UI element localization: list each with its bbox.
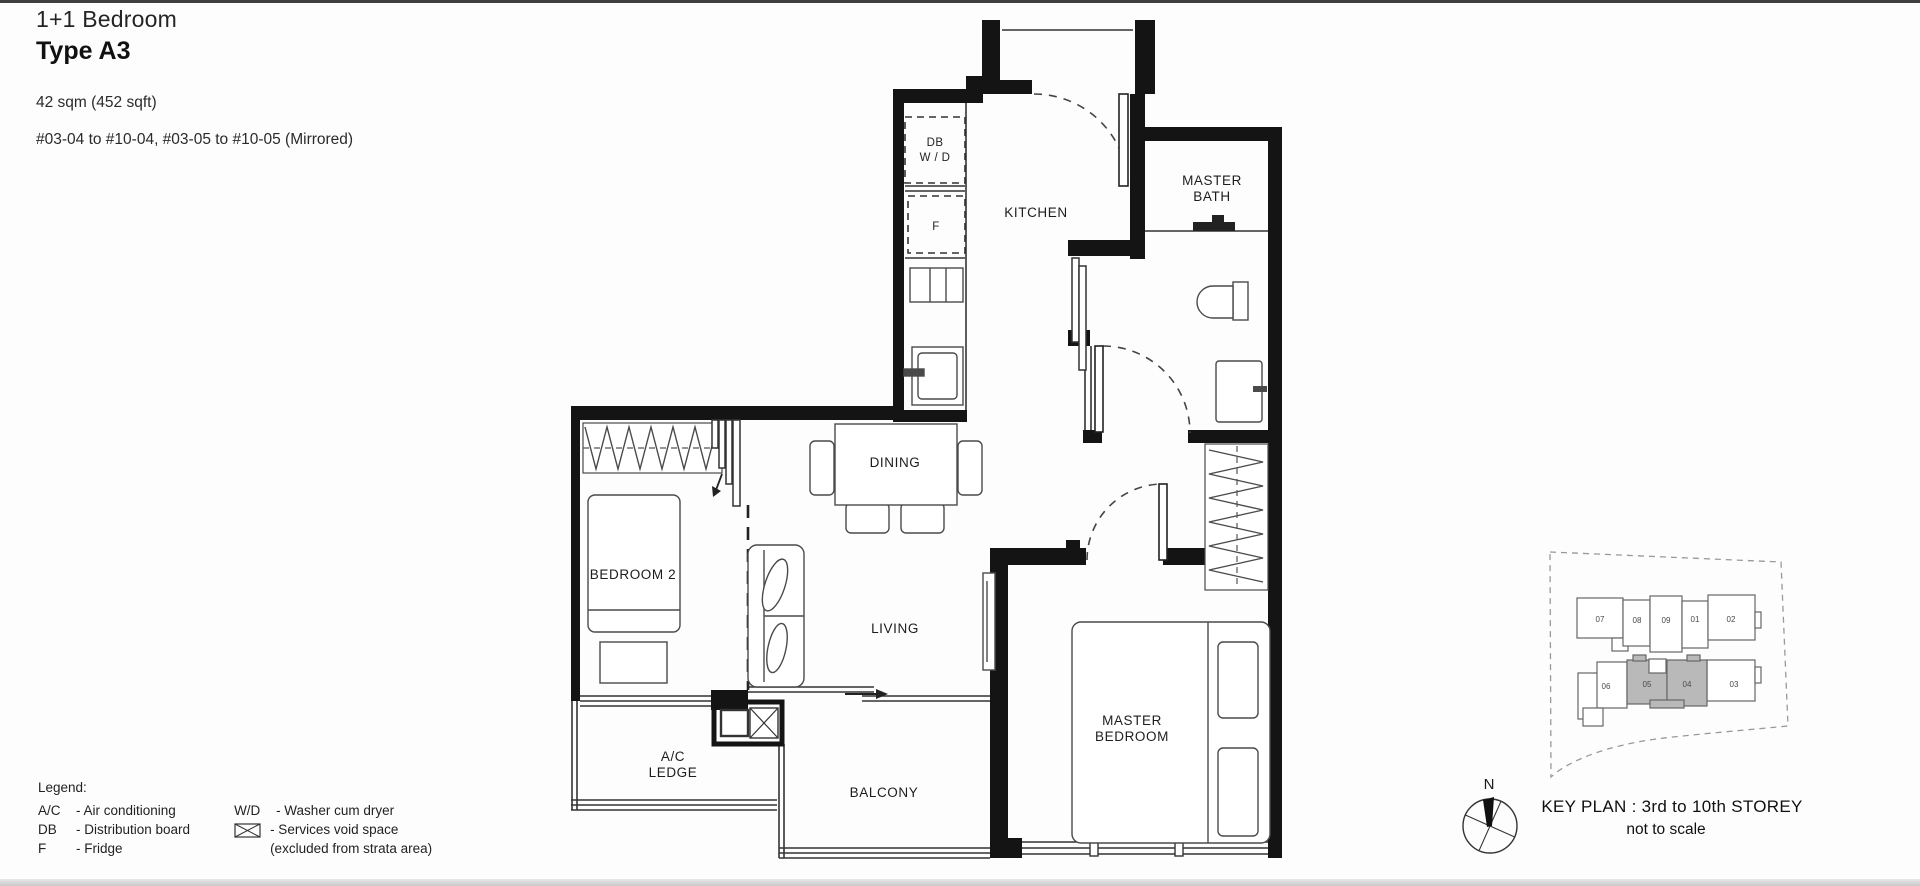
- legend-left-column: A/C - Air conditioning DB - Distribution…: [38, 803, 190, 860]
- legend-desc-void-note: (excluded from strata area): [270, 841, 432, 856]
- bedroom2-wardrobe: [583, 423, 722, 473]
- label-kitchen: KITCHEN: [1004, 205, 1067, 220]
- master-bath-door-leaf: [1095, 346, 1103, 432]
- dining-chair-bottom-2: [901, 503, 944, 533]
- dining-chair-bottom-1: [846, 503, 889, 533]
- label-db: DB: [927, 137, 944, 149]
- kitchen-faucet: [904, 369, 924, 376]
- db-wd-box: [905, 117, 965, 183]
- slide-direction-arrow: [845, 689, 888, 699]
- label-ac-ledge-1: A/C: [661, 749, 685, 764]
- legend-desc-f: - Fridge: [76, 841, 123, 856]
- basin-faucet: [1253, 386, 1267, 392]
- bedroom2-desk: [600, 642, 667, 683]
- label-master-bedroom-1: MASTER: [1102, 713, 1162, 728]
- key-plan-highlighted-blocks: [1627, 655, 1707, 708]
- kp-unit-06: 06: [1602, 682, 1611, 691]
- pillow: [1218, 642, 1258, 718]
- dining-chair-right: [958, 441, 982, 495]
- kp-unit-08: 08: [1633, 616, 1642, 625]
- label-wd: W / D: [920, 152, 951, 164]
- hob: [910, 268, 963, 302]
- legend-desc-ac: - Air conditioning: [76, 803, 176, 818]
- kitchen-sliding-panel: [1072, 258, 1086, 370]
- north-compass-icon: N: [1454, 776, 1525, 862]
- key-plan-title: KEY PLAN : 3rd to 10th STOREY: [1541, 797, 1802, 816]
- label-bedroom2: BEDROOM 2: [590, 567, 676, 582]
- kp-unit-03: 03: [1730, 680, 1739, 689]
- key-plan: 07 08 09 01 02 06 05 04 03 N KEY PLAN : …: [1454, 552, 1802, 862]
- kp-unit-07: 07: [1596, 615, 1605, 624]
- label-ac-ledge-2: LEDGE: [649, 765, 698, 780]
- pillow: [1218, 748, 1258, 836]
- kp-unit-02: 02: [1727, 615, 1736, 624]
- legend-abbr-f: F: [38, 841, 76, 856]
- bedroom2-bed: [588, 495, 680, 632]
- legend-abbr-wd: W/D: [234, 803, 276, 818]
- legend-desc-wd: - Washer cum dryer: [276, 803, 394, 818]
- fold-direction-arrow: [712, 474, 722, 497]
- floor-plan: KITCHEN MASTER BATH DB W / D F DINING BE…: [0, 0, 1920, 886]
- legend-title: Legend:: [38, 780, 432, 795]
- dining-set: [810, 424, 982, 533]
- master-wardrobe: [1205, 444, 1268, 590]
- kitchen-counter: [904, 268, 963, 405]
- kp-unit-04: 04: [1683, 680, 1692, 689]
- label-balcony: BALCONY: [850, 785, 919, 800]
- legend-abbr-db: DB: [38, 822, 76, 837]
- tv-console: [983, 573, 995, 670]
- label-master-bath-2: BATH: [1193, 189, 1230, 204]
- key-plan-subtitle: not to scale: [1626, 821, 1705, 838]
- label-fridge: F: [932, 221, 939, 233]
- sofa: [748, 545, 804, 687]
- services-void-icon: [234, 823, 261, 838]
- kp-unit-01: 01: [1691, 615, 1700, 624]
- legend: Legend: A/C - Air conditioning DB - Dist…: [38, 780, 432, 860]
- entry-door-arc: [1034, 94, 1128, 188]
- entry-door-leaf: [1119, 94, 1128, 186]
- label-master-bath-1: MASTER: [1182, 173, 1242, 188]
- toilet-bowl: [1197, 286, 1233, 318]
- label-master-bedroom-2: BEDROOM: [1095, 729, 1169, 744]
- kp-unit-05: 05: [1643, 680, 1652, 689]
- north-label: N: [1484, 776, 1495, 793]
- label-dining: DINING: [870, 455, 921, 470]
- master-bath-fixtures: [1193, 215, 1267, 422]
- master-bedroom-door-arc: [1087, 484, 1163, 560]
- master-bath-door-arc: [1103, 346, 1190, 433]
- kp-unit-09: 09: [1662, 616, 1671, 625]
- dining-chair-left: [810, 441, 834, 495]
- legend-desc-void: - Services void space: [270, 822, 398, 837]
- legend-right-column: W/D - Washer cum dryer - Services void s…: [234, 803, 432, 860]
- label-living: LIVING: [871, 621, 919, 636]
- shower-screen: [1193, 222, 1235, 231]
- toilet-tank: [1233, 282, 1248, 320]
- legend-desc-db: - Distribution board: [76, 822, 190, 837]
- legend-abbr-ac: A/C: [38, 803, 76, 818]
- master-bedroom-door-leaf: [1159, 484, 1167, 560]
